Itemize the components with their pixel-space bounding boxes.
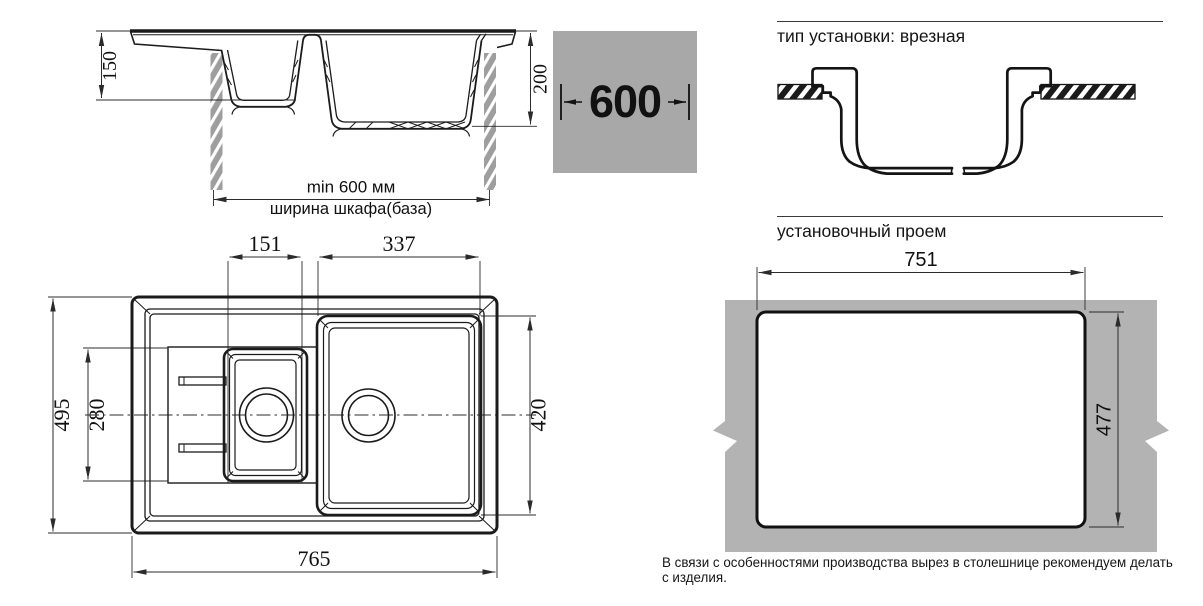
opening-header: установочный проем [777,216,1163,242]
drain-groove [179,444,226,452]
dimension-150: 150 [96,31,296,100]
main-bowl-depth-value: 200 [530,64,552,94]
drain-groove [179,377,226,385]
cabinet-size-badge: 600 [553,31,697,173]
inset-sink-profile [813,68,1051,173]
small-bowl-depth-value: 150 [99,51,121,81]
small-bowl-length-value: 280 [84,399,109,432]
section-view-drawing: 150 200 min 600 мм ширина шкафа(база) [85,20,550,222]
small-bowl-width-value: 151 [249,231,282,256]
main-bowl-width-value: 337 [383,231,416,256]
bowl-bottom-hatch [349,122,465,129]
opening-title: установочный проем [777,221,946,241]
production-note: В связи с особенностями производства выр… [662,555,1177,585]
sink-technical-drawing: 150 200 min 600 мм ширина шкафа(база) [0,0,1203,606]
cutout-opening [757,312,1085,527]
dimension-200: 200 [472,31,552,126]
badge-600-graphic: 600 [556,73,694,131]
opening-width-value: 751 [904,249,937,271]
cabinet-min-width-label: min 600 мм [307,178,396,197]
opening-diagram: 751 477 [690,248,1185,560]
install-type-title: тип установки: врезная [777,26,965,46]
overall-length-value: 765 [298,546,331,571]
cabinet-size-value: 600 [589,76,661,127]
dimension-min-600: min 600 мм ширина шкафа(база) [214,178,490,219]
install-type-header: тип установки: врезная [777,21,1163,47]
opening-height-value: 477 [1094,403,1116,436]
mounting-diagram [770,58,1165,183]
top-view-drawing: 151 337 495 280 420 765 [40,240,540,586]
main-bowl-length-value: 420 [526,399,551,432]
cabinet-width-label: ширина шкафа(база) [270,200,432,218]
sink-section-profile [130,31,516,137]
overall-width-value: 495 [49,399,74,432]
